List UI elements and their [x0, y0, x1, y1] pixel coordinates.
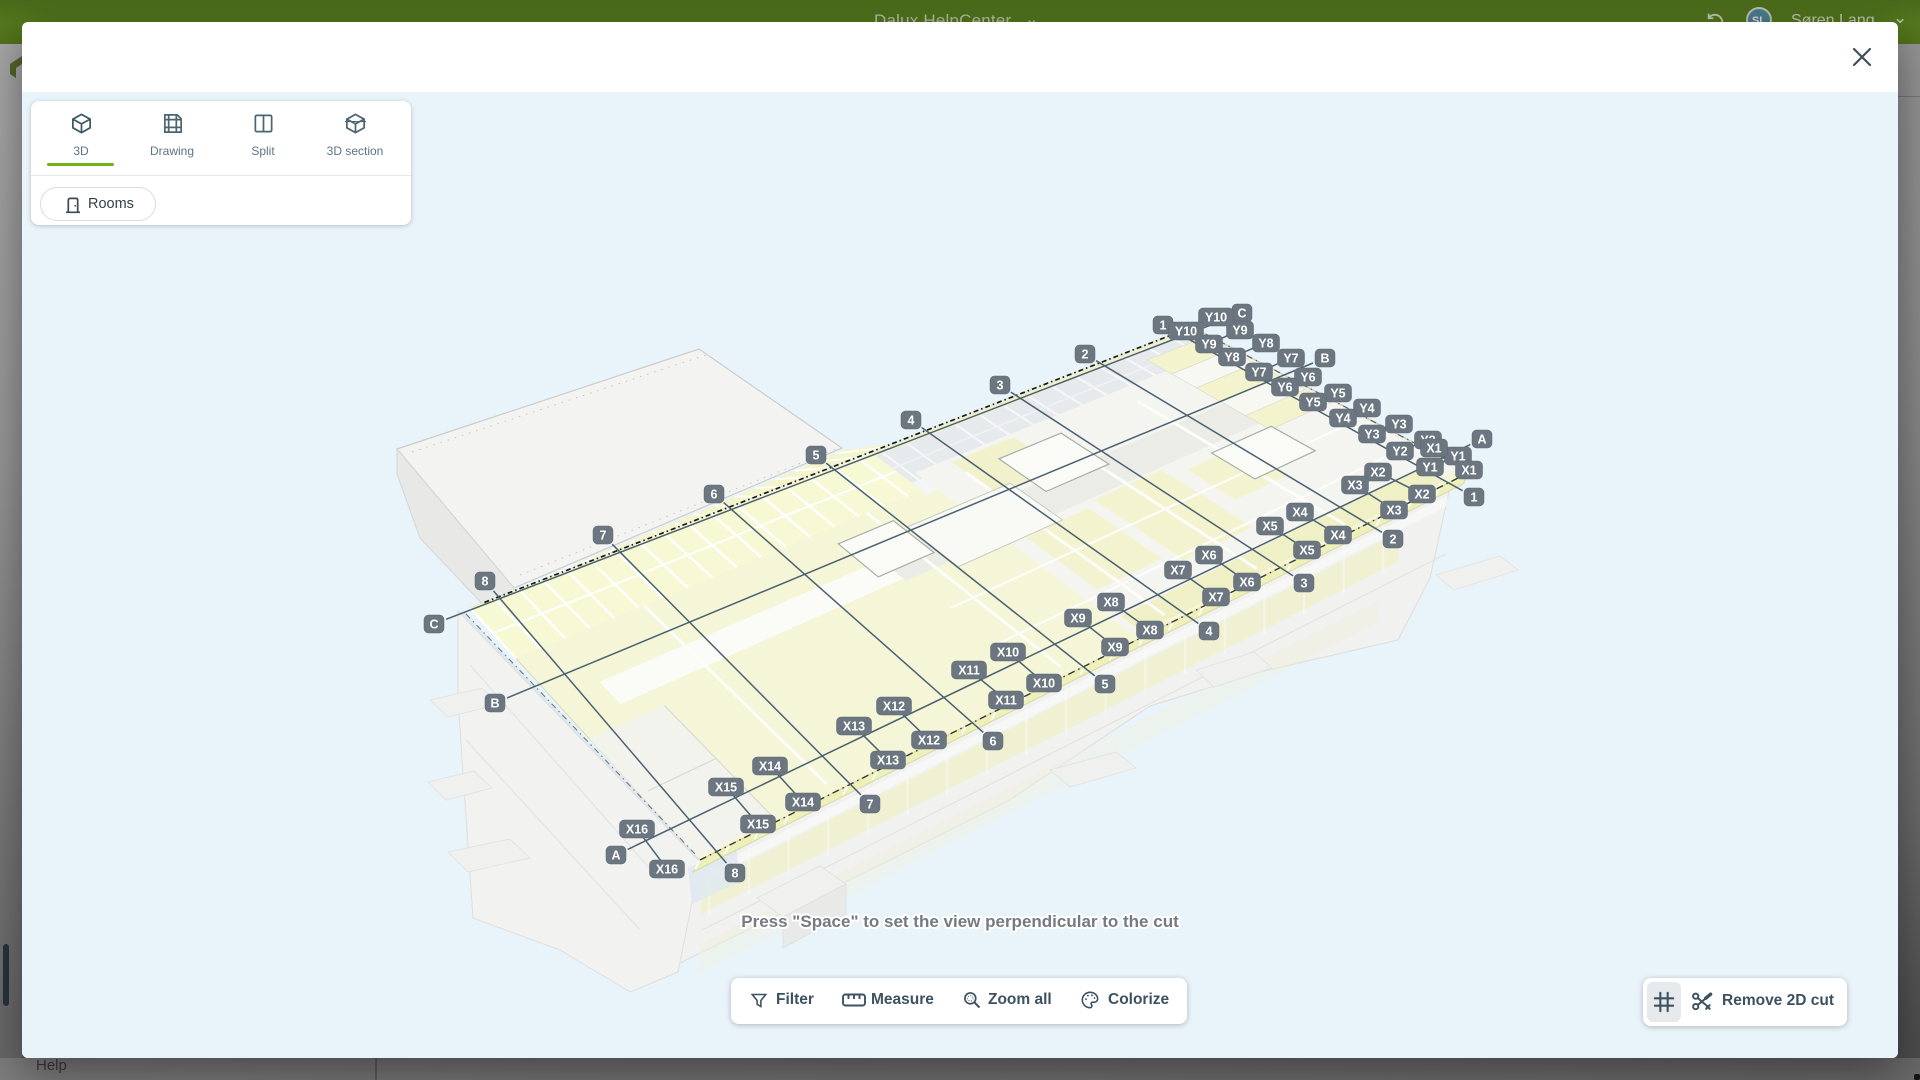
- svg-text:Y8: Y8: [1224, 351, 1239, 365]
- svg-text:X4: X4: [1330, 529, 1345, 543]
- svg-text:Y9: Y9: [1232, 324, 1247, 338]
- svg-text:1: 1: [1160, 319, 1167, 333]
- svg-text:X6: X6: [1201, 549, 1216, 563]
- svg-text:6: 6: [990, 735, 997, 749]
- svg-text:X2: X2: [1414, 488, 1429, 502]
- svg-text:3: 3: [1301, 577, 1308, 591]
- svg-text:X8: X8: [1142, 624, 1157, 638]
- svg-text:X10: X10: [997, 646, 1019, 660]
- svg-text:X12: X12: [883, 700, 905, 714]
- svg-text:X8: X8: [1103, 596, 1118, 610]
- svg-text:5: 5: [813, 449, 820, 463]
- svg-text:Y4: Y4: [1335, 412, 1350, 426]
- svg-text:8: 8: [732, 867, 739, 881]
- svg-text:X7: X7: [1170, 564, 1185, 578]
- svg-text:Y7: Y7: [1283, 352, 1298, 366]
- svg-text:X14: X14: [792, 796, 814, 810]
- svg-text:X5: X5: [1299, 544, 1314, 558]
- svg-text:Y5: Y5: [1305, 396, 1320, 410]
- svg-text:Y10: Y10: [1175, 325, 1197, 339]
- svg-text:4: 4: [908, 414, 915, 428]
- svg-text:X9: X9: [1107, 641, 1122, 655]
- svg-text:Y9: Y9: [1201, 338, 1216, 352]
- svg-text:1: 1: [1471, 491, 1478, 505]
- svg-text:8: 8: [482, 575, 489, 589]
- svg-text:X1: X1: [1461, 464, 1476, 478]
- svg-text:7: 7: [867, 798, 874, 812]
- svg-text:3: 3: [997, 379, 1004, 393]
- svg-text:5: 5: [1102, 678, 1109, 692]
- svg-text:2: 2: [1082, 348, 1089, 362]
- svg-text:X12: X12: [918, 734, 940, 748]
- svg-text:2: 2: [1390, 533, 1397, 547]
- svg-text:Y4: Y4: [1359, 402, 1374, 416]
- svg-text:X3: X3: [1386, 504, 1401, 518]
- svg-text:X11: X11: [958, 664, 980, 678]
- svg-text:X2: X2: [1370, 466, 1385, 480]
- svg-text:Y10: Y10: [1205, 311, 1227, 325]
- svg-text:6: 6: [711, 488, 718, 502]
- svg-text:X16: X16: [626, 823, 648, 837]
- svg-text:Y2: Y2: [1392, 445, 1407, 459]
- svg-text:Press "Space" to set the view: Press "Space" to set the view perpendicu…: [741, 912, 1179, 931]
- svg-text:Y3: Y3: [1391, 418, 1406, 432]
- svg-text:Y3: Y3: [1364, 428, 1379, 442]
- svg-text:Y8: Y8: [1258, 337, 1273, 351]
- svg-text:4: 4: [1206, 625, 1213, 639]
- svg-text:Y1: Y1: [1422, 461, 1437, 475]
- svg-text:X14: X14: [759, 760, 781, 774]
- svg-text:7: 7: [600, 529, 607, 543]
- svg-text:X4: X4: [1292, 506, 1307, 520]
- svg-text:Y6: Y6: [1277, 381, 1292, 395]
- svg-text:A: A: [611, 849, 620, 863]
- svg-text:C: C: [429, 618, 438, 632]
- svg-text:A: A: [1477, 433, 1486, 447]
- svg-text:X16: X16: [656, 863, 678, 877]
- svg-text:Y7: Y7: [1251, 366, 1266, 380]
- svg-text:X6: X6: [1239, 576, 1254, 590]
- svg-text:X13: X13: [843, 720, 865, 734]
- svg-text:X9: X9: [1070, 612, 1085, 626]
- svg-text:X11: X11: [995, 694, 1017, 708]
- svg-text:X13: X13: [877, 754, 899, 768]
- svg-text:B: B: [1320, 352, 1329, 366]
- svg-text:B: B: [490, 697, 499, 711]
- svg-text:Y6: Y6: [1300, 371, 1315, 385]
- svg-text:X15: X15: [747, 818, 769, 832]
- svg-text:C: C: [1237, 307, 1246, 321]
- svg-text:X15: X15: [715, 781, 737, 795]
- svg-text:X10: X10: [1033, 677, 1055, 691]
- svg-text:X3: X3: [1347, 479, 1362, 493]
- svg-text:X5: X5: [1262, 520, 1277, 534]
- svg-text:X7: X7: [1208, 591, 1223, 605]
- svg-text:Y5: Y5: [1330, 387, 1345, 401]
- svg-text:X1: X1: [1426, 442, 1441, 456]
